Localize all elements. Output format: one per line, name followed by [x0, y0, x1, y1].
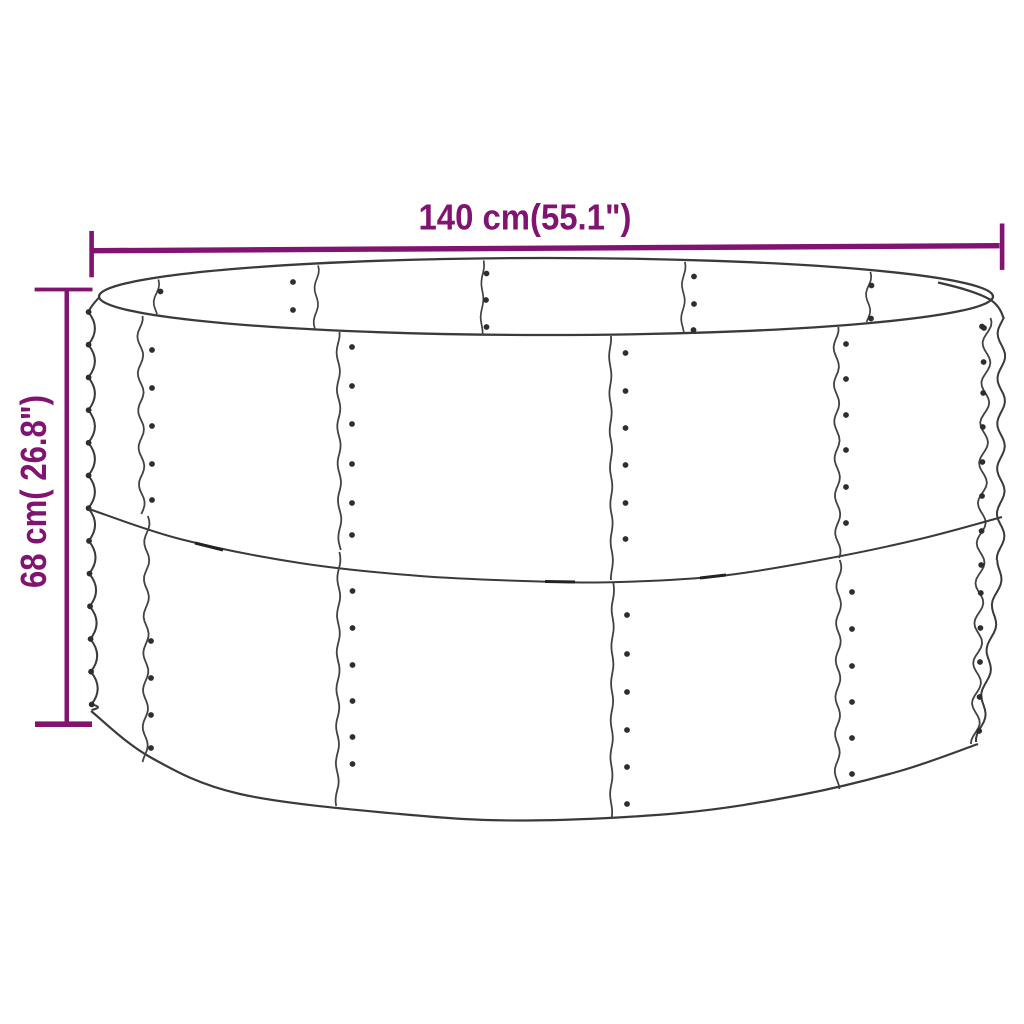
svg-text:140 cm(55.1"): 140 cm(55.1")	[419, 197, 632, 238]
svg-text:68 cm( 26.8"): 68 cm( 26.8")	[13, 395, 54, 588]
